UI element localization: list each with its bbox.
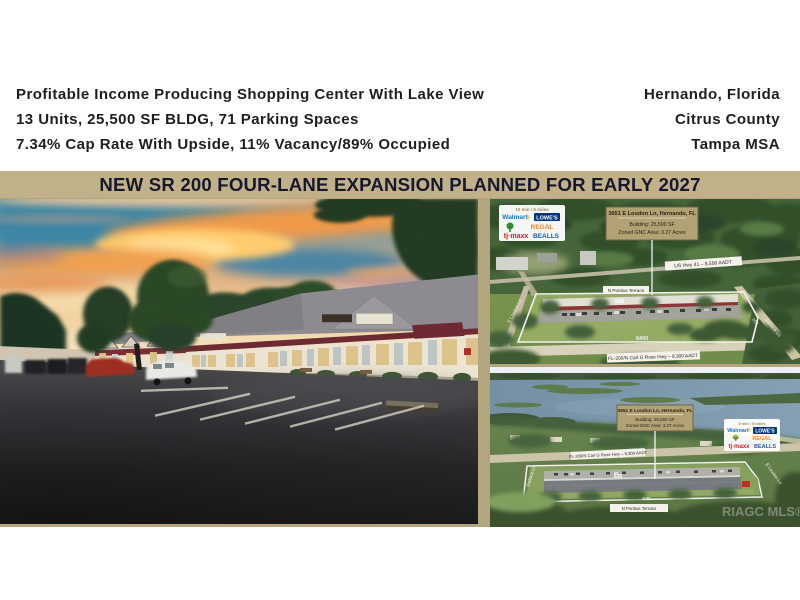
svg-text:BEALLS: BEALLS [533, 233, 560, 240]
svg-text:REGAL: REGAL [531, 224, 554, 231]
svg-text:Building: 25,500 SF: Building: 25,500 SF [635, 417, 675, 422]
svg-text:6400: 6400 [636, 336, 648, 342]
svg-text:✳: ✳ [525, 214, 531, 222]
svg-text:✳: ✳ [746, 427, 751, 434]
svg-text:N Pontius Terrace: N Pontius Terrace [608, 288, 645, 293]
svg-text:LOWE'S: LOWE'S [755, 429, 775, 435]
svg-text:🌳: 🌳 [732, 434, 739, 442]
svg-text:tj·maxx: tj·maxx [504, 233, 529, 240]
svg-text:tj·maxx: tj·maxx [728, 444, 750, 450]
svg-text:A32: A32 [642, 496, 651, 501]
svg-text:LOWE'S: LOWE'S [536, 216, 558, 222]
svg-text:5 min / 5 miles: 5 min / 5 miles [738, 421, 766, 426]
svg-text:3651 E Loudon Ln, Hernando, FL: 3651 E Loudon Ln, Hernando, FL [618, 408, 693, 414]
svg-text:N Pontius Terrace: N Pontius Terrace [622, 506, 657, 511]
svg-text:REGAL: REGAL [752, 436, 772, 442]
svg-text:3651 E Loudon Ln, Hernando, FL: 3651 E Loudon Ln, Hernando, FL [608, 211, 696, 217]
svg-text:Zoned GNC Area: 3.27 Acres: Zoned GNC Area: 3.27 Acres [626, 423, 685, 428]
svg-text:Building: 25,500 SF: Building: 25,500 SF [629, 222, 674, 228]
svg-text:10 min / 5 miles: 10 min / 5 miles [515, 207, 549, 212]
svg-text:Zoned GNC Area: 3.27 Acres: Zoned GNC Area: 3.27 Acres [618, 230, 686, 236]
svg-text:BEALLS: BEALLS [754, 444, 776, 450]
svg-text:630: 630 [614, 474, 623, 480]
svg-text:630: 630 [615, 299, 624, 305]
